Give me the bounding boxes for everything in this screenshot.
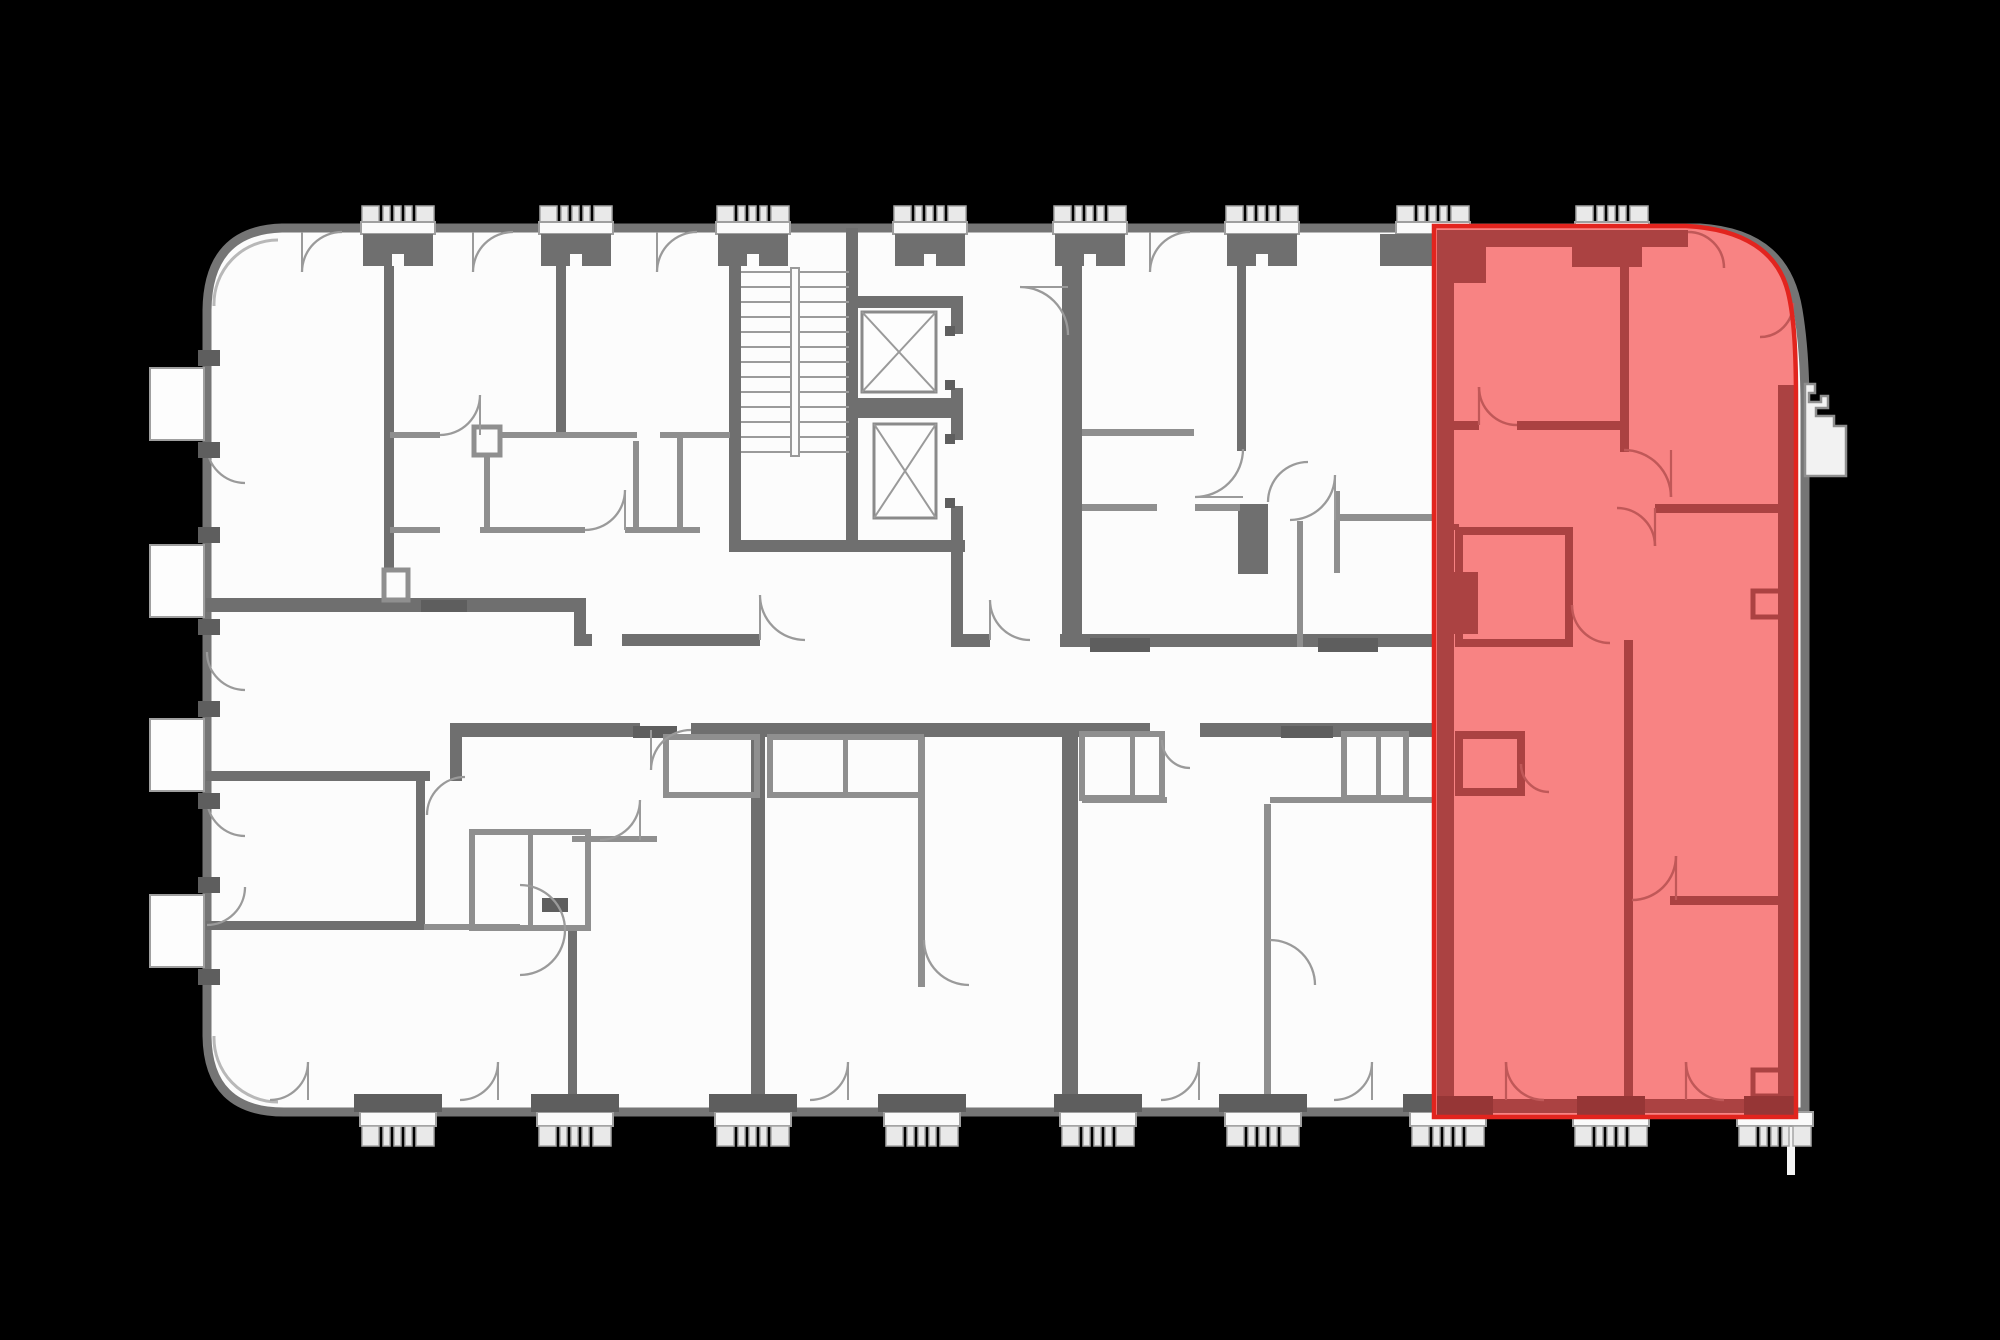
- floor-plan-canvas: [0, 0, 2000, 1340]
- highlighted-unit-fill[interactable]: [1434, 226, 1796, 1117]
- elevator-icon: [874, 424, 936, 518]
- elevator-icon: [862, 312, 936, 392]
- floor-plan: [0, 0, 2000, 1340]
- highlighted-unit[interactable]: [1434, 226, 1796, 1117]
- bay-window: [1805, 384, 1846, 476]
